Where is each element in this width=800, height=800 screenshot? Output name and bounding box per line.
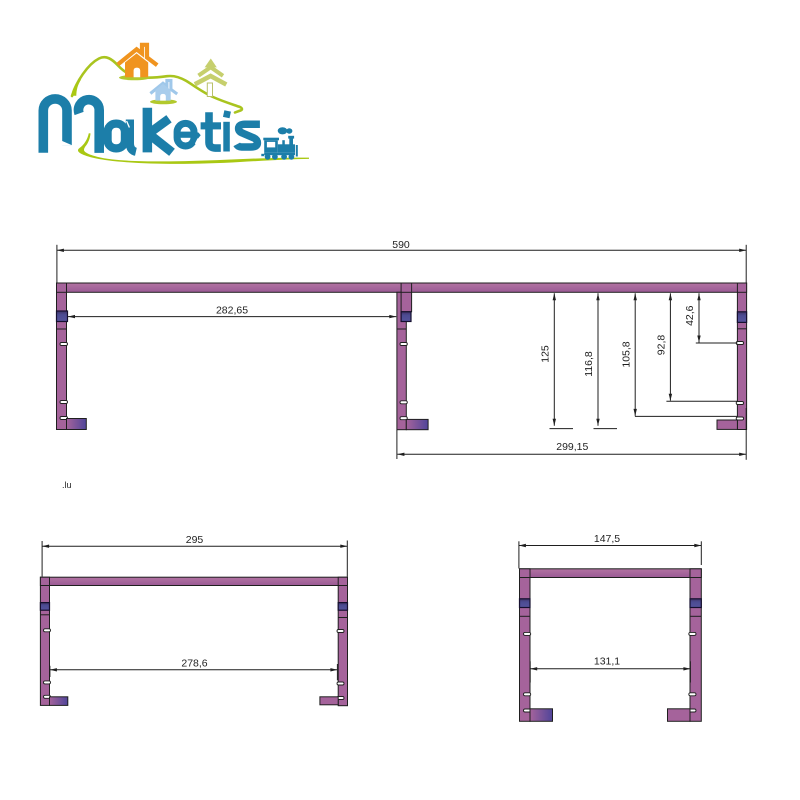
svg-text:147,5: 147,5 bbox=[594, 533, 620, 545]
svg-text:92,8: 92,8 bbox=[656, 335, 668, 356]
svg-text:.lu: .lu bbox=[62, 480, 72, 490]
svg-text:295: 295 bbox=[186, 534, 204, 546]
svg-text:278,6: 278,6 bbox=[181, 658, 207, 670]
svg-text:131,1: 131,1 bbox=[594, 655, 620, 667]
svg-text:42,6: 42,6 bbox=[684, 305, 696, 326]
svg-text:116,8: 116,8 bbox=[583, 351, 595, 377]
svg-text:299,15: 299,15 bbox=[556, 441, 588, 453]
svg-text:590: 590 bbox=[392, 239, 410, 251]
svg-text:125: 125 bbox=[540, 345, 552, 363]
svg-text:105,8: 105,8 bbox=[620, 341, 632, 367]
svg-text:282,65: 282,65 bbox=[216, 305, 248, 317]
